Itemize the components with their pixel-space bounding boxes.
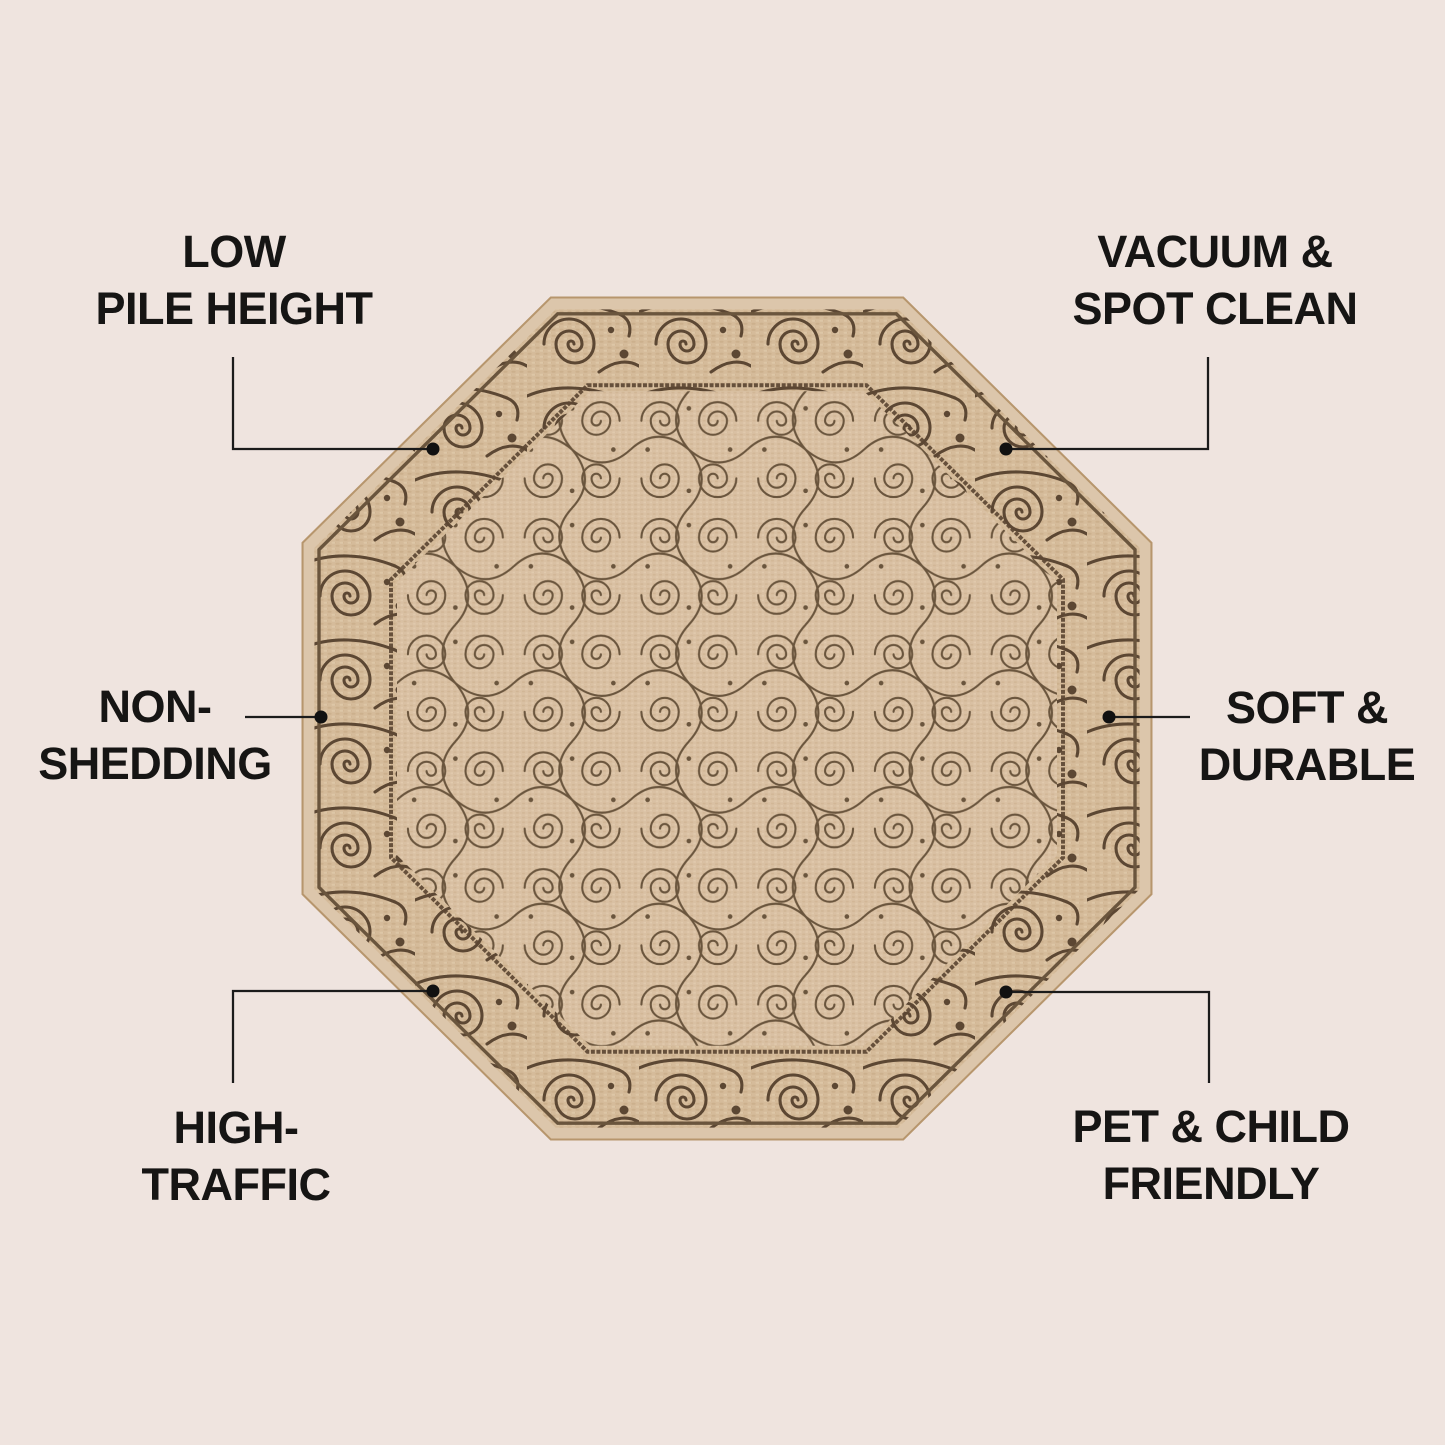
rug-field xyxy=(397,391,1057,1046)
label-line: TRAFFIC xyxy=(56,1156,416,1213)
label-non-shedding: NON- SHEDDING xyxy=(0,678,335,792)
label-line: SHEDDING xyxy=(0,735,335,792)
rug-image xyxy=(295,290,1159,1147)
label-high-traffic: HIGH- TRAFFIC xyxy=(56,1099,416,1213)
label-line: FRIENDLY xyxy=(1031,1155,1391,1212)
label-line: PET & CHILD xyxy=(1031,1098,1391,1155)
label-line: DURABLE xyxy=(1127,736,1445,793)
label-line: SPOT CLEAN xyxy=(1035,280,1395,337)
label-line: LOW xyxy=(54,223,414,280)
label-soft-durable: SOFT & DURABLE xyxy=(1127,679,1445,793)
label-pet-child-friendly: PET & CHILD FRIENDLY xyxy=(1031,1098,1391,1212)
label-line: VACUUM & xyxy=(1035,223,1395,280)
product-feature-infographic: LOW PILE HEIGHT VACUUM & SPOT CLEAN NON-… xyxy=(0,0,1445,1445)
label-low-pile-height: LOW PILE HEIGHT xyxy=(54,223,414,337)
label-line: HIGH- xyxy=(56,1099,416,1156)
label-line: PILE HEIGHT xyxy=(54,280,414,337)
label-vacuum-spot-clean: VACUUM & SPOT CLEAN xyxy=(1035,223,1395,337)
label-line: SOFT & xyxy=(1127,679,1445,736)
label-line: NON- xyxy=(0,678,335,735)
